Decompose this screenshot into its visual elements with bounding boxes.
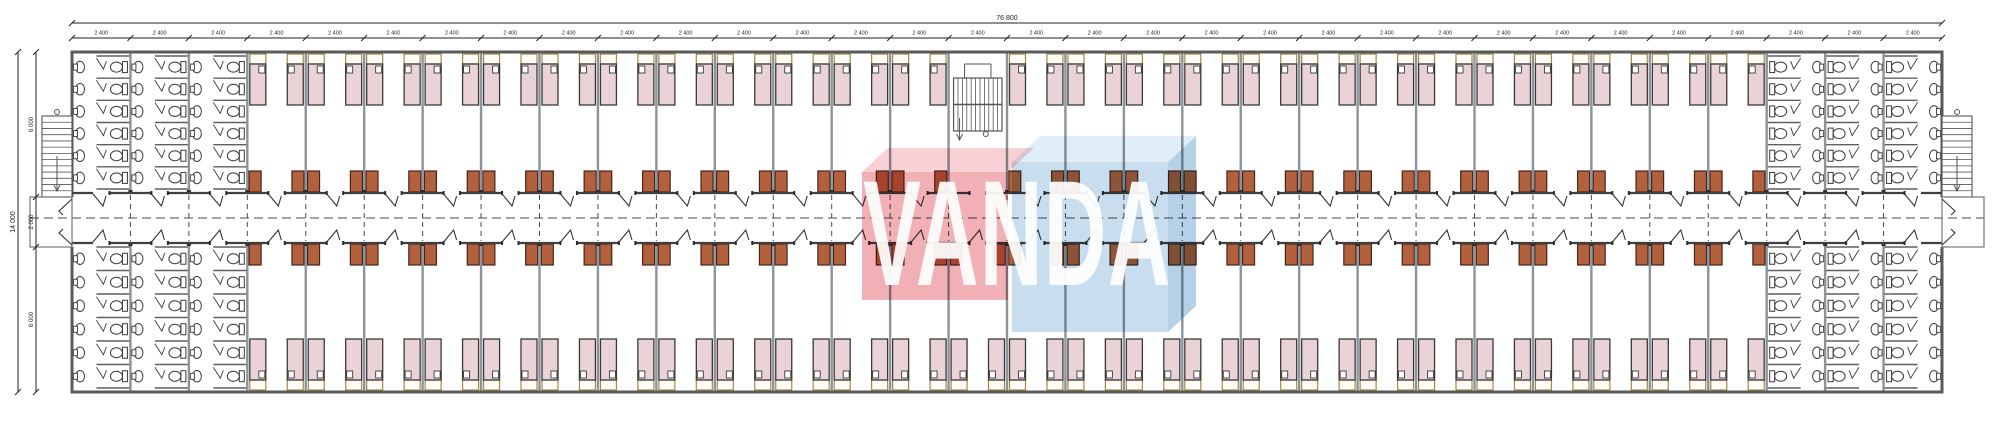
headboard-shelf xyxy=(1010,380,1026,390)
wardrobe xyxy=(541,244,553,265)
door-swing xyxy=(155,367,165,378)
door-swing xyxy=(96,80,106,91)
headboard-shelf xyxy=(1047,54,1063,64)
wash-basin xyxy=(1813,61,1824,73)
bed-room xyxy=(424,244,479,390)
toilet xyxy=(1828,324,1845,335)
door-swing xyxy=(93,194,106,206)
door-swing xyxy=(1612,230,1625,242)
door-swing xyxy=(677,230,690,242)
bed-room xyxy=(1652,54,1707,192)
wash-basin xyxy=(132,172,143,184)
wardrobe xyxy=(1535,171,1547,192)
wash-basin xyxy=(1871,276,1882,288)
headboard-shelf xyxy=(755,380,771,390)
wash-basin xyxy=(74,323,85,335)
wardrobe xyxy=(1476,244,1488,265)
door-swing xyxy=(1908,344,1918,355)
wardrobe xyxy=(1402,171,1414,192)
wardrobe xyxy=(1636,171,1648,192)
pillow xyxy=(434,371,440,378)
toilet xyxy=(1770,106,1787,117)
headboard-shelf xyxy=(930,380,946,390)
wardrobe xyxy=(658,171,670,192)
door-swing xyxy=(213,58,223,69)
wash-basin xyxy=(132,253,143,265)
wash-basin xyxy=(190,128,201,140)
wardrobe xyxy=(467,171,479,192)
toilet xyxy=(1770,172,1787,183)
door-swing xyxy=(1905,194,1918,206)
wash-basin xyxy=(190,300,201,312)
pillow xyxy=(1369,371,1375,378)
toilet xyxy=(1887,253,1904,264)
door-swing xyxy=(1320,230,1333,242)
wash-basin xyxy=(1871,370,1882,382)
pillow xyxy=(1749,66,1755,73)
pillow xyxy=(1223,371,1229,378)
pillow xyxy=(522,66,528,73)
pillow xyxy=(1632,371,1638,378)
door-swing xyxy=(677,194,690,206)
wardrobe xyxy=(1285,244,1297,265)
headboard-shelf xyxy=(367,54,383,64)
headboard-shelf xyxy=(755,54,771,64)
headboard-shelf xyxy=(1068,54,1084,64)
wash-basin xyxy=(1871,347,1882,359)
bed-room xyxy=(1652,244,1707,390)
door-swing xyxy=(1908,80,1918,91)
wardrobe xyxy=(1593,171,1605,192)
wash-basin xyxy=(1813,172,1824,184)
door-swing xyxy=(1729,230,1742,242)
wardrobe xyxy=(584,244,596,265)
door-swing xyxy=(151,194,164,206)
toilet xyxy=(169,300,186,311)
headboard-shelf xyxy=(1711,54,1727,64)
headboard-shelf xyxy=(1105,380,1121,390)
wardrobe xyxy=(833,171,845,192)
pillow xyxy=(609,371,615,378)
toilet xyxy=(169,172,186,183)
wash-basin xyxy=(1813,128,1824,140)
pillow xyxy=(1369,66,1375,73)
left-dimensions: 14 0006 0002 0006 000 xyxy=(10,49,39,395)
pillow xyxy=(873,66,879,73)
wash-basin xyxy=(132,150,143,162)
headboard-shelf xyxy=(1690,54,1706,64)
headboard-shelf xyxy=(1281,380,1297,390)
headboard-shelf xyxy=(930,54,946,64)
pillow xyxy=(464,371,470,378)
toilet xyxy=(110,106,127,117)
door-swing xyxy=(1496,194,1509,206)
pillow xyxy=(1486,66,1492,73)
pillow xyxy=(1515,66,1521,73)
wash-basin xyxy=(1813,106,1824,118)
pillow xyxy=(1194,66,1200,73)
pillow xyxy=(580,371,586,378)
headboard-shelf xyxy=(1398,380,1414,390)
headboard-shelf xyxy=(1339,380,1355,390)
door-swing xyxy=(213,344,223,355)
pillow xyxy=(1019,66,1025,73)
washroom xyxy=(132,247,189,388)
door-swing xyxy=(1788,194,1801,206)
bed-room xyxy=(1301,244,1356,390)
washroom xyxy=(1767,247,1824,388)
door-swing xyxy=(1849,344,1859,355)
headboard-shelf xyxy=(1126,380,1142,390)
pillow xyxy=(785,371,791,378)
bed-room xyxy=(658,54,713,192)
wash-basin xyxy=(1871,150,1882,162)
headboard-shelf xyxy=(1456,54,1472,64)
washroom xyxy=(74,247,131,388)
svg-text:76 800: 76 800 xyxy=(996,15,1018,22)
wardrobe xyxy=(483,171,495,192)
door-swing xyxy=(736,230,749,242)
wardrobe xyxy=(584,171,596,192)
wash-basin xyxy=(1871,300,1882,312)
headboard-shelf xyxy=(1652,54,1668,64)
headboard-shelf xyxy=(638,54,654,64)
door-swing xyxy=(1905,230,1918,242)
pillow xyxy=(347,66,353,73)
headboard-shelf xyxy=(346,380,362,390)
wash-basin xyxy=(1930,106,1941,118)
headboard-shelf xyxy=(287,380,303,390)
wash-basin xyxy=(1871,323,1882,335)
svg-text:2 400: 2 400 xyxy=(153,31,167,37)
bed-room xyxy=(1710,54,1765,192)
pillow xyxy=(1661,66,1667,73)
pillow xyxy=(1077,66,1083,73)
wash-basin xyxy=(1813,300,1824,312)
toilet xyxy=(1828,150,1845,161)
bed-room xyxy=(366,54,421,192)
wardrobe xyxy=(409,244,421,265)
pillow xyxy=(1428,371,1434,378)
wash-basin xyxy=(74,106,85,118)
door-swing xyxy=(1849,320,1859,331)
wardrobe xyxy=(1227,244,1239,265)
svg-text:2 400: 2 400 xyxy=(328,31,342,37)
headboard-shelf xyxy=(308,380,324,390)
svg-text:2 400: 2 400 xyxy=(562,31,576,37)
pillow xyxy=(726,66,732,73)
headboard-shelf xyxy=(1010,54,1026,64)
wardrobe xyxy=(701,244,713,265)
pillow xyxy=(1340,66,1346,73)
wardrobe xyxy=(350,171,362,192)
bed-room xyxy=(483,54,538,192)
headboard-shelf xyxy=(1514,380,1530,390)
toilet xyxy=(169,84,186,95)
bed-room xyxy=(1301,54,1356,192)
wash-basin xyxy=(1871,172,1882,184)
svg-text:2 400: 2 400 xyxy=(854,31,868,37)
svg-text:2 400: 2 400 xyxy=(1205,31,1219,37)
headboard-shelf xyxy=(1243,54,1259,64)
door-swing xyxy=(1908,273,1918,284)
door-swing xyxy=(1908,147,1918,158)
pillow xyxy=(1574,66,1580,73)
door-swing xyxy=(155,169,165,180)
door-swing xyxy=(1849,297,1859,308)
washroom xyxy=(1884,56,1941,189)
door-swing xyxy=(561,230,574,242)
door-swing xyxy=(213,297,223,308)
door-swing xyxy=(502,194,515,206)
headboard-shelf xyxy=(893,54,909,64)
pillow xyxy=(697,66,703,73)
headboard-shelf xyxy=(1360,380,1376,390)
wash-basin xyxy=(1930,61,1941,73)
wash-basin xyxy=(190,106,201,118)
pillow xyxy=(1457,66,1463,73)
pillow xyxy=(259,66,265,73)
svg-text:2 400: 2 400 xyxy=(1029,31,1043,37)
washroom xyxy=(1825,247,1882,388)
headboard-shelf xyxy=(1711,380,1727,390)
wardrobe xyxy=(701,171,713,192)
pillow xyxy=(726,371,732,378)
wash-basin xyxy=(1930,83,1941,95)
headboard-shelf xyxy=(1126,54,1142,64)
pillow xyxy=(1019,371,1025,378)
wash-basin xyxy=(1930,323,1941,335)
headboard-shelf xyxy=(1690,380,1706,390)
bed-room xyxy=(1535,54,1590,192)
wardrobe xyxy=(1710,244,1722,265)
door-swing xyxy=(1612,194,1625,206)
pillow xyxy=(376,371,382,378)
wardrobe xyxy=(1344,244,1356,265)
headboard-shelf xyxy=(1222,380,1238,390)
door-swing xyxy=(444,194,457,206)
toilet xyxy=(1770,128,1787,139)
wardrobe xyxy=(292,171,304,192)
door-swing xyxy=(1203,194,1216,206)
door-swing xyxy=(155,250,165,261)
pillow xyxy=(1165,371,1171,378)
svg-text:2 400: 2 400 xyxy=(1555,31,1569,37)
headboard-shelf xyxy=(1105,54,1121,64)
washroom xyxy=(190,247,247,388)
door-swing xyxy=(96,344,106,355)
pillow xyxy=(1048,371,1054,378)
wardrobe xyxy=(409,171,421,192)
headboard-shelf xyxy=(872,54,888,64)
wardrobe xyxy=(1593,244,1605,265)
bed-room xyxy=(1243,54,1298,192)
toilet xyxy=(169,106,186,117)
bed-room xyxy=(658,244,713,390)
wash-basin xyxy=(1871,61,1882,73)
wardrobe xyxy=(424,171,436,192)
wash-basin xyxy=(74,61,85,73)
pillow xyxy=(1574,371,1580,378)
svg-text:2 400: 2 400 xyxy=(445,31,459,37)
wash-basin xyxy=(74,347,85,359)
door-swing xyxy=(155,273,165,284)
wardrobe xyxy=(350,244,362,265)
door-swing xyxy=(155,102,165,113)
headboard-shelf xyxy=(542,380,558,390)
pillow xyxy=(814,371,820,378)
door-swing xyxy=(1908,125,1918,136)
headboard-shelf xyxy=(1477,380,1493,390)
toilet xyxy=(169,150,186,161)
door-swing xyxy=(1791,80,1801,91)
headboard-shelf xyxy=(1594,54,1610,64)
wardrobe xyxy=(1461,244,1473,265)
toilet xyxy=(1770,300,1787,311)
door-swing xyxy=(327,230,340,242)
pillow xyxy=(931,66,937,73)
pillow xyxy=(1515,371,1521,378)
pillow xyxy=(1282,371,1288,378)
wash-basin xyxy=(1813,347,1824,359)
toilet xyxy=(1887,300,1904,311)
headboard-shelf xyxy=(659,54,675,64)
toilet xyxy=(227,62,244,73)
wash-basin xyxy=(1871,83,1882,95)
svg-text:2 400: 2 400 xyxy=(1672,31,1686,37)
pillow xyxy=(873,371,879,378)
washroom xyxy=(190,56,247,189)
wash-basin xyxy=(132,276,143,288)
door-swing xyxy=(96,297,106,308)
wardrobe xyxy=(1694,244,1706,265)
toilet xyxy=(169,324,186,335)
pillow xyxy=(902,371,908,378)
door-swing xyxy=(385,230,398,242)
headboard-shelf xyxy=(542,54,558,64)
door-swing xyxy=(1908,169,1918,180)
toilet xyxy=(1887,324,1904,335)
headboard-shelf xyxy=(1594,380,1610,390)
headboard-shelf xyxy=(1185,380,1201,390)
toilet xyxy=(1887,277,1904,288)
wash-basin xyxy=(190,253,201,265)
door-swing xyxy=(96,169,106,180)
headboard-shelf xyxy=(579,380,595,390)
wardrobe xyxy=(1301,171,1313,192)
pillow xyxy=(1165,66,1171,73)
door-swing xyxy=(1496,230,1509,242)
floor-plan-drawing: 76 8002 4002 4002 4002 4002 4002 4002 40… xyxy=(0,0,2000,427)
svg-text:2 400: 2 400 xyxy=(1497,31,1511,37)
toilet xyxy=(1770,253,1787,264)
toilet xyxy=(1887,106,1904,117)
headboard-shelf xyxy=(1477,54,1493,64)
headboard-shelf xyxy=(484,54,500,64)
door-swing xyxy=(96,102,106,113)
wardrobe xyxy=(1652,244,1664,265)
toilet xyxy=(1770,150,1787,161)
pillow xyxy=(522,371,528,378)
pillow xyxy=(551,66,557,73)
wash-basin xyxy=(1813,370,1824,382)
headboard-shelf xyxy=(696,54,712,64)
bed-room xyxy=(1710,244,1765,390)
pillow xyxy=(990,371,996,378)
door-swing xyxy=(96,320,106,331)
headboard-shelf xyxy=(951,380,967,390)
door-swing xyxy=(210,194,223,206)
pillow xyxy=(1252,66,1258,73)
bed-room xyxy=(1535,244,1590,390)
pillow xyxy=(493,66,499,73)
wardrobe xyxy=(1476,171,1488,192)
door-swing xyxy=(1203,230,1216,242)
toilet xyxy=(1828,172,1845,183)
washroom xyxy=(132,56,189,189)
headboard-shelf xyxy=(1281,54,1297,64)
headboard-shelf xyxy=(250,380,266,390)
pillow xyxy=(347,371,353,378)
pillow xyxy=(1311,66,1317,73)
wardrobe xyxy=(424,244,436,265)
headboard-shelf xyxy=(1360,54,1376,64)
bed-room xyxy=(1359,244,1414,390)
pillow xyxy=(1223,66,1229,73)
pillow xyxy=(317,371,323,378)
svg-text:2 400: 2 400 xyxy=(620,31,634,37)
wardrobe xyxy=(1535,244,1547,265)
pillow xyxy=(609,66,615,73)
wash-basin xyxy=(1871,128,1882,140)
door-swing xyxy=(213,102,223,113)
toilet xyxy=(169,371,186,382)
door-swing xyxy=(1908,367,1918,378)
door-swing xyxy=(1791,125,1801,136)
wardrobe xyxy=(1402,244,1414,265)
headboard-shelf xyxy=(834,54,850,64)
svg-text:6 000: 6 000 xyxy=(29,116,35,132)
wash-basin xyxy=(1930,172,1941,184)
headboard-shelf xyxy=(1185,54,1201,64)
wash-basin xyxy=(1813,150,1824,162)
door-swing xyxy=(1849,367,1859,378)
wash-basin xyxy=(1813,276,1824,288)
wash-basin xyxy=(1930,150,1941,162)
headboard-shelf xyxy=(659,380,675,390)
door-swing xyxy=(736,194,749,206)
door-swing xyxy=(1846,230,1859,242)
pillow xyxy=(1428,66,1434,73)
wardrobe xyxy=(775,244,787,265)
pillow xyxy=(1661,371,1667,378)
bed-room xyxy=(424,54,479,192)
wardrobe xyxy=(717,244,729,265)
bed-room xyxy=(1243,244,1298,390)
bed-room xyxy=(249,244,304,390)
headboard-shelf xyxy=(1573,54,1589,64)
headboard-shelf xyxy=(425,54,441,64)
door-swing xyxy=(619,194,632,206)
bed-room xyxy=(541,244,596,390)
door-swing xyxy=(1849,80,1859,91)
wardrobe xyxy=(1578,171,1590,192)
bed-room xyxy=(717,54,772,192)
wash-basin xyxy=(74,370,85,382)
door-swing xyxy=(213,250,223,261)
door-swing xyxy=(96,367,106,378)
pillow xyxy=(1544,66,1550,73)
